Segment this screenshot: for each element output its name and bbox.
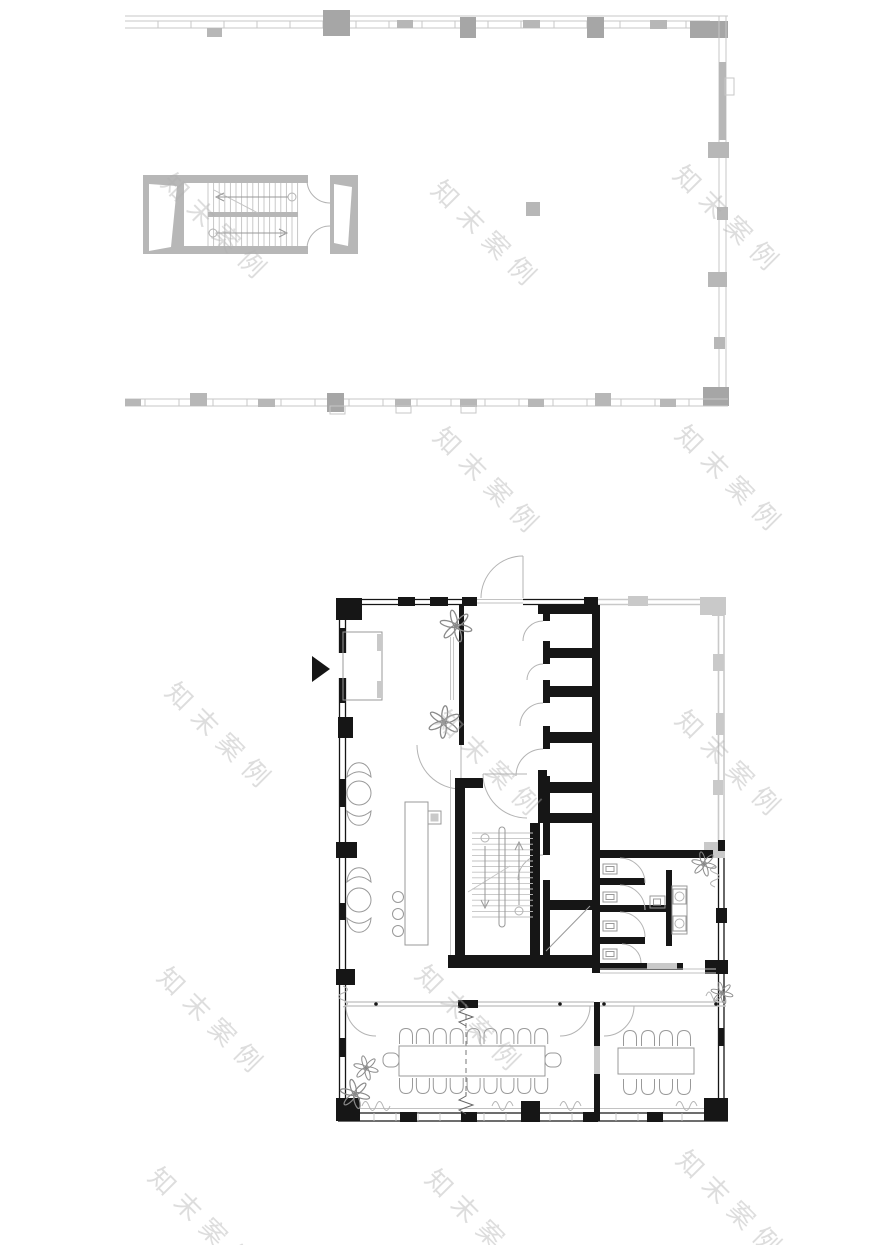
chair — [501, 1078, 514, 1094]
stair-handrail — [499, 827, 505, 927]
conference-table-small — [618, 1048, 694, 1074]
curtain-symbol — [492, 1102, 513, 1111]
door-swing — [417, 745, 461, 789]
reception-desk — [405, 802, 428, 945]
chair — [433, 1078, 446, 1094]
reception-area — [393, 802, 442, 945]
stair-handrail — [208, 212, 298, 217]
movable-partition — [459, 1004, 473, 1114]
lounge-chair — [347, 781, 371, 805]
end-chair — [383, 1053, 399, 1067]
chair — [467, 1078, 480, 1094]
toilet-block — [592, 850, 720, 973]
ramp-line — [546, 906, 590, 951]
washbasin-counter — [672, 886, 687, 934]
plant — [353, 1055, 378, 1080]
curtain-symbol — [362, 1102, 390, 1111]
mullion-ticks — [158, 21, 686, 28]
lounge-chair — [347, 811, 371, 825]
corner-column — [690, 21, 728, 38]
phone-booth-stack — [516, 605, 600, 955]
chair — [678, 1031, 691, 1047]
wc-toilet — [603, 949, 617, 959]
door-swing — [307, 226, 330, 249]
door-swing — [523, 621, 543, 641]
upper-top-wall — [125, 10, 728, 38]
main-floor-plan — [312, 556, 733, 1122]
chair — [624, 1031, 637, 1047]
door-swing — [520, 703, 543, 726]
chair — [416, 1029, 429, 1045]
chair — [660, 1079, 673, 1095]
entrance-arrow — [312, 656, 330, 682]
stair-break-line — [468, 866, 510, 892]
curtain-symbol — [560, 1102, 581, 1111]
upper-stair-core — [143, 175, 358, 254]
corner-column — [705, 960, 728, 974]
upper-bottom-wall — [125, 393, 728, 414]
door-swing — [527, 664, 543, 680]
bar-stool — [393, 909, 404, 920]
chair — [518, 1078, 531, 1094]
chair — [501, 1029, 514, 1045]
corner-column — [336, 1098, 360, 1121]
stair-treads — [472, 833, 533, 917]
door-swing — [307, 180, 330, 203]
lounge-chair — [347, 918, 371, 932]
floor-plan-drawing — [0, 0, 880, 1245]
right-wall — [704, 600, 728, 1098]
curtain-symbol — [676, 1102, 697, 1111]
chair — [642, 1079, 655, 1095]
entry-door-swing — [481, 556, 523, 598]
corner-column — [704, 1098, 728, 1121]
chair — [450, 1029, 463, 1045]
corner-column — [336, 598, 362, 620]
upper-floor-plan — [125, 10, 734, 414]
chair — [535, 1078, 548, 1094]
chair — [450, 1078, 463, 1094]
chair — [416, 1078, 429, 1094]
bar-stool — [393, 926, 404, 937]
chair — [400, 1029, 413, 1045]
column — [207, 28, 222, 37]
chair — [642, 1031, 655, 1047]
chair — [678, 1079, 691, 1095]
interior-partition-wall — [417, 605, 464, 789]
door-swing — [620, 912, 645, 937]
threshold — [647, 963, 677, 969]
upper-right-wall — [703, 16, 734, 406]
door-swing — [622, 944, 641, 963]
left-wall — [336, 598, 362, 1120]
column — [323, 10, 350, 36]
top-wall — [345, 556, 726, 615]
plant — [423, 701, 465, 743]
door-swing — [346, 1006, 376, 1036]
door-swing — [483, 774, 527, 818]
wc-toilet — [603, 892, 617, 902]
corner-column — [703, 387, 729, 406]
conference-room-right — [618, 1031, 694, 1095]
entry-closet — [343, 632, 382, 700]
chair — [433, 1029, 446, 1045]
bottom-wall — [336, 1098, 728, 1122]
chair — [624, 1079, 637, 1095]
chair — [518, 1029, 531, 1045]
wc-toilet — [603, 864, 617, 874]
conference-table-long — [399, 1046, 545, 1076]
upper-column — [526, 202, 540, 216]
conference-room-left — [383, 1029, 561, 1094]
plant — [440, 610, 473, 643]
plant — [340, 1079, 370, 1109]
wc-toilet — [603, 921, 617, 931]
bar-stool — [393, 892, 404, 903]
chair — [467, 1029, 480, 1045]
chair — [535, 1029, 548, 1045]
lounge-chair — [347, 868, 371, 882]
floor-plan-canvas: 知末案例知末案例知末案例知末案例知末案例知末案例知末案例知末案例知末案例知末案例… — [0, 0, 880, 1245]
plant — [711, 982, 734, 1005]
end-chair — [545, 1053, 561, 1067]
chair — [660, 1031, 673, 1047]
lounge-chair — [347, 763, 371, 777]
lounge-chair — [347, 888, 371, 912]
stair-core — [448, 770, 600, 968]
chair — [484, 1029, 497, 1045]
door-swing — [604, 1006, 634, 1036]
chair — [400, 1078, 413, 1094]
door-swing — [560, 1006, 590, 1036]
chair — [484, 1078, 497, 1094]
